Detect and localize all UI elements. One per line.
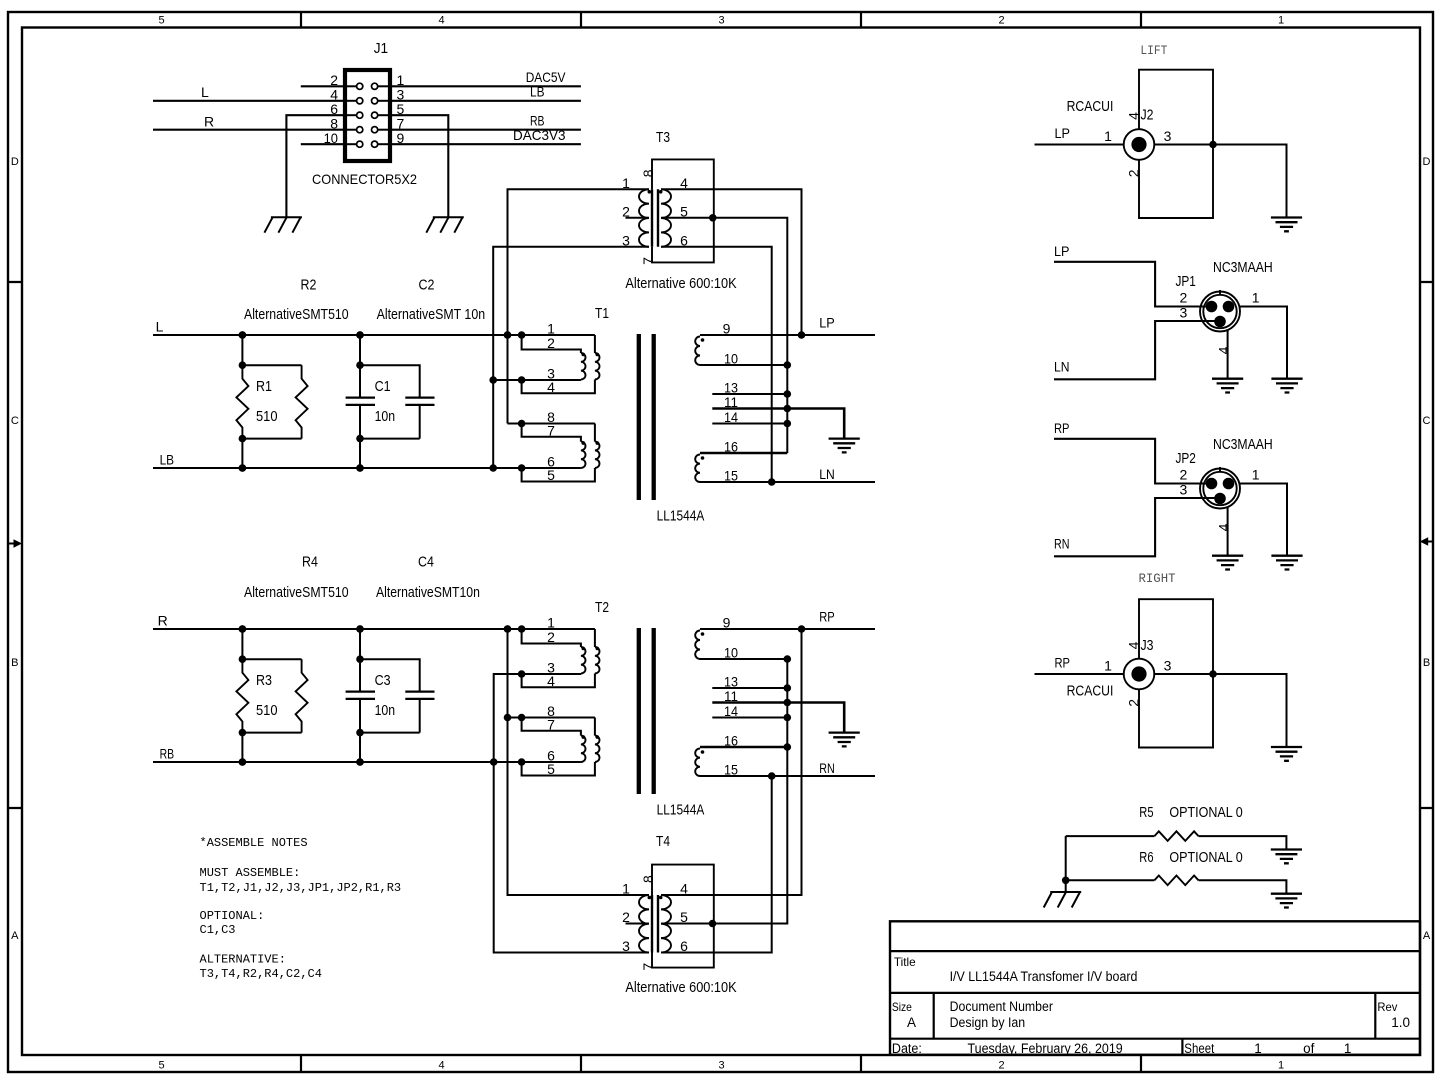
svg-text:RP: RP (1054, 420, 1070, 436)
svg-text:CONNECTOR5X2: CONNECTOR5X2 (312, 172, 417, 187)
svg-text:10n: 10n (375, 409, 396, 425)
svg-text:LL1544A: LL1544A (657, 803, 705, 819)
svg-text:2: 2 (1125, 699, 1141, 707)
svg-text:14: 14 (724, 409, 738, 425)
svg-text:R1: R1 (256, 379, 272, 395)
svg-text:LP: LP (1055, 125, 1071, 141)
svg-text:C3: C3 (375, 673, 391, 689)
svg-text:3: 3 (1164, 128, 1172, 144)
svg-text:510: 510 (256, 703, 278, 719)
svg-text:2: 2 (1180, 290, 1188, 306)
svg-text:4: 4 (1125, 641, 1141, 649)
svg-text:L: L (201, 84, 209, 100)
svg-text:LB: LB (160, 452, 175, 468)
svg-text:C: C (1423, 415, 1431, 427)
svg-text:4: 4 (438, 1060, 444, 1072)
svg-text:Title: Title (894, 955, 916, 969)
svg-text:1: 1 (1252, 467, 1260, 483)
svg-text:Size: Size (892, 1000, 912, 1014)
svg-text:C4: C4 (418, 555, 434, 571)
svg-text:15: 15 (724, 762, 738, 778)
svg-text:ALTERNATIVE:: ALTERNATIVE: (200, 953, 286, 967)
svg-text:LN: LN (1054, 359, 1070, 375)
svg-text:LB: LB (530, 84, 545, 100)
svg-text:T1: T1 (595, 306, 609, 322)
svg-text:JP1: JP1 (1176, 274, 1196, 290)
svg-text:RN: RN (819, 760, 835, 776)
svg-text:*ASSEMBLE NOTES: *ASSEMBLE NOTES (200, 836, 308, 850)
svg-text:LIFT: LIFT (1140, 44, 1167, 58)
svg-text:OPTIONAL:: OPTIONAL: (200, 909, 265, 923)
svg-text:AlternativeSMT 10n: AlternativeSMT 10n (377, 307, 486, 323)
svg-text:5: 5 (547, 467, 555, 483)
svg-text:5: 5 (158, 15, 164, 27)
svg-text:R3: R3 (256, 673, 272, 689)
svg-text:R5: R5 (1139, 805, 1153, 821)
svg-text:RP: RP (1055, 655, 1071, 671)
svg-text:Rev: Rev (1377, 1000, 1397, 1014)
svg-text:16: 16 (724, 439, 738, 455)
svg-text:Tuesday, February 26, 2019: Tuesday, February 26, 2019 (968, 1041, 1123, 1056)
svg-text:1: 1 (1278, 15, 1284, 27)
svg-text:15: 15 (724, 468, 738, 484)
svg-text:9: 9 (723, 321, 731, 337)
svg-text:2: 2 (547, 335, 555, 351)
svg-text:RCACUI: RCACUI (1067, 99, 1114, 115)
svg-text:7: 7 (547, 717, 555, 733)
svg-text:7: 7 (640, 963, 656, 971)
svg-text:Document Number: Document Number (950, 999, 1054, 1014)
svg-text:of: of (1303, 1041, 1315, 1056)
svg-text:4: 4 (547, 673, 555, 689)
svg-text:10: 10 (724, 351, 738, 367)
svg-text:RP: RP (819, 609, 835, 625)
svg-text:1.0: 1.0 (1391, 1015, 1410, 1030)
svg-text:3: 3 (718, 15, 724, 27)
svg-text:LN: LN (819, 466, 835, 482)
svg-text:D: D (1423, 156, 1431, 168)
svg-text:B: B (1423, 657, 1430, 669)
svg-text:T3,T4,R2,R4,C2,C4: T3,T4,R2,R4,C2,C4 (200, 967, 322, 981)
svg-text:2: 2 (622, 909, 630, 925)
svg-text:L: L (156, 319, 164, 335)
svg-text:R6: R6 (1139, 850, 1153, 866)
svg-text:16: 16 (724, 733, 738, 749)
svg-text:1: 1 (1254, 1041, 1262, 1056)
svg-text:14: 14 (724, 703, 738, 719)
svg-text:7: 7 (640, 257, 656, 265)
svg-text:OPTIONAL 0: OPTIONAL 0 (1169, 850, 1242, 866)
svg-text:4: 4 (547, 379, 555, 395)
svg-text:4: 4 (438, 15, 444, 27)
svg-text:1: 1 (1278, 1060, 1284, 1072)
svg-text:JP2: JP2 (1176, 451, 1196, 467)
svg-text:R4: R4 (302, 555, 318, 571)
svg-text:A: A (11, 930, 19, 942)
svg-text:T3: T3 (656, 130, 670, 146)
svg-text:4: 4 (1125, 112, 1141, 120)
svg-text:11: 11 (724, 394, 738, 410)
svg-text:C1: C1 (375, 379, 391, 395)
svg-text:5: 5 (158, 1060, 164, 1072)
svg-text:3: 3 (1164, 658, 1172, 674)
svg-text:J1: J1 (374, 41, 388, 57)
svg-text:1: 1 (1344, 1041, 1352, 1056)
svg-text:T2: T2 (595, 600, 609, 616)
svg-text:1: 1 (1104, 658, 1112, 674)
svg-text:2: 2 (1180, 467, 1188, 483)
svg-text:C: C (11, 415, 19, 427)
svg-text:10: 10 (724, 645, 738, 661)
svg-text:NC3MAAH: NC3MAAH (1213, 260, 1273, 276)
svg-text:R: R (204, 113, 214, 129)
svg-text:R: R (158, 613, 168, 629)
svg-text:3: 3 (1180, 481, 1188, 497)
svg-text:Sheet: Sheet (1184, 1041, 1214, 1056)
svg-text:510: 510 (256, 409, 278, 425)
svg-text:LP: LP (819, 315, 835, 331)
svg-text:10n: 10n (375, 703, 396, 719)
svg-text:4: 4 (1215, 346, 1231, 354)
svg-text:OPTIONAL 0: OPTIONAL 0 (1169, 805, 1242, 821)
svg-text:5: 5 (547, 761, 555, 777)
svg-text:RCACUI: RCACUI (1067, 683, 1114, 699)
svg-text:9: 9 (397, 130, 405, 146)
svg-text:RB: RB (160, 746, 175, 762)
svg-text:C2: C2 (419, 278, 435, 294)
svg-text:3: 3 (718, 1060, 724, 1072)
svg-text:8: 8 (640, 875, 656, 883)
svg-text:11: 11 (724, 688, 738, 704)
svg-text:1: 1 (1104, 128, 1112, 144)
svg-text:RB: RB (530, 113, 545, 129)
svg-text:AlternativeSMT10n: AlternativeSMT10n (376, 585, 480, 601)
svg-text:AlternativeSMT510: AlternativeSMT510 (244, 307, 349, 323)
svg-text:7: 7 (547, 423, 555, 439)
svg-text:2: 2 (998, 15, 1004, 27)
svg-text:Date:: Date: (892, 1041, 922, 1056)
svg-text:B: B (11, 657, 18, 669)
svg-text:2: 2 (547, 629, 555, 645)
svg-text:3: 3 (1180, 304, 1188, 320)
svg-text:4: 4 (1215, 523, 1231, 531)
svg-text:A: A (907, 1015, 916, 1030)
svg-text:10: 10 (324, 130, 339, 146)
svg-text:Design by Ian: Design by Ian (950, 1015, 1026, 1030)
svg-text:C1,C3: C1,C3 (200, 923, 236, 937)
svg-text:T1,T2,J1,J2,J3,JP1,JP2,R1,R3: T1,T2,J1,J2,J3,JP1,JP2,R1,R3 (200, 881, 402, 895)
svg-text:8: 8 (640, 169, 656, 177)
svg-text:2: 2 (998, 1060, 1004, 1072)
svg-text:A: A (1423, 930, 1431, 942)
svg-text:MUST ASSEMBLE:: MUST ASSEMBLE: (200, 866, 301, 880)
svg-text:9: 9 (723, 615, 731, 631)
svg-text:AlternativeSMT510: AlternativeSMT510 (244, 585, 349, 601)
svg-text:LP: LP (1054, 243, 1070, 259)
svg-text:NC3MAAH: NC3MAAH (1213, 437, 1273, 453)
svg-text:DAC3V3: DAC3V3 (513, 127, 566, 143)
svg-text:RN: RN (1054, 536, 1070, 552)
svg-text:J2: J2 (1141, 108, 1154, 124)
svg-text:Alternative 600:10K: Alternative 600:10K (625, 980, 736, 996)
svg-text:LL1544A: LL1544A (657, 509, 705, 525)
svg-text:J3: J3 (1141, 638, 1154, 654)
svg-text:I/V LL1544A Transfomer I/V boa: I/V LL1544A Transfomer I/V board (950, 969, 1138, 984)
svg-text:1: 1 (1252, 290, 1260, 306)
svg-text:2: 2 (622, 203, 630, 219)
svg-text:R2: R2 (301, 278, 317, 294)
svg-text:Alternative 600:10K: Alternative 600:10K (625, 276, 736, 292)
svg-text:2: 2 (1125, 169, 1141, 177)
svg-text:RIGHT: RIGHT (1139, 572, 1176, 586)
svg-text:D: D (11, 156, 19, 168)
svg-text:T4: T4 (656, 834, 670, 850)
